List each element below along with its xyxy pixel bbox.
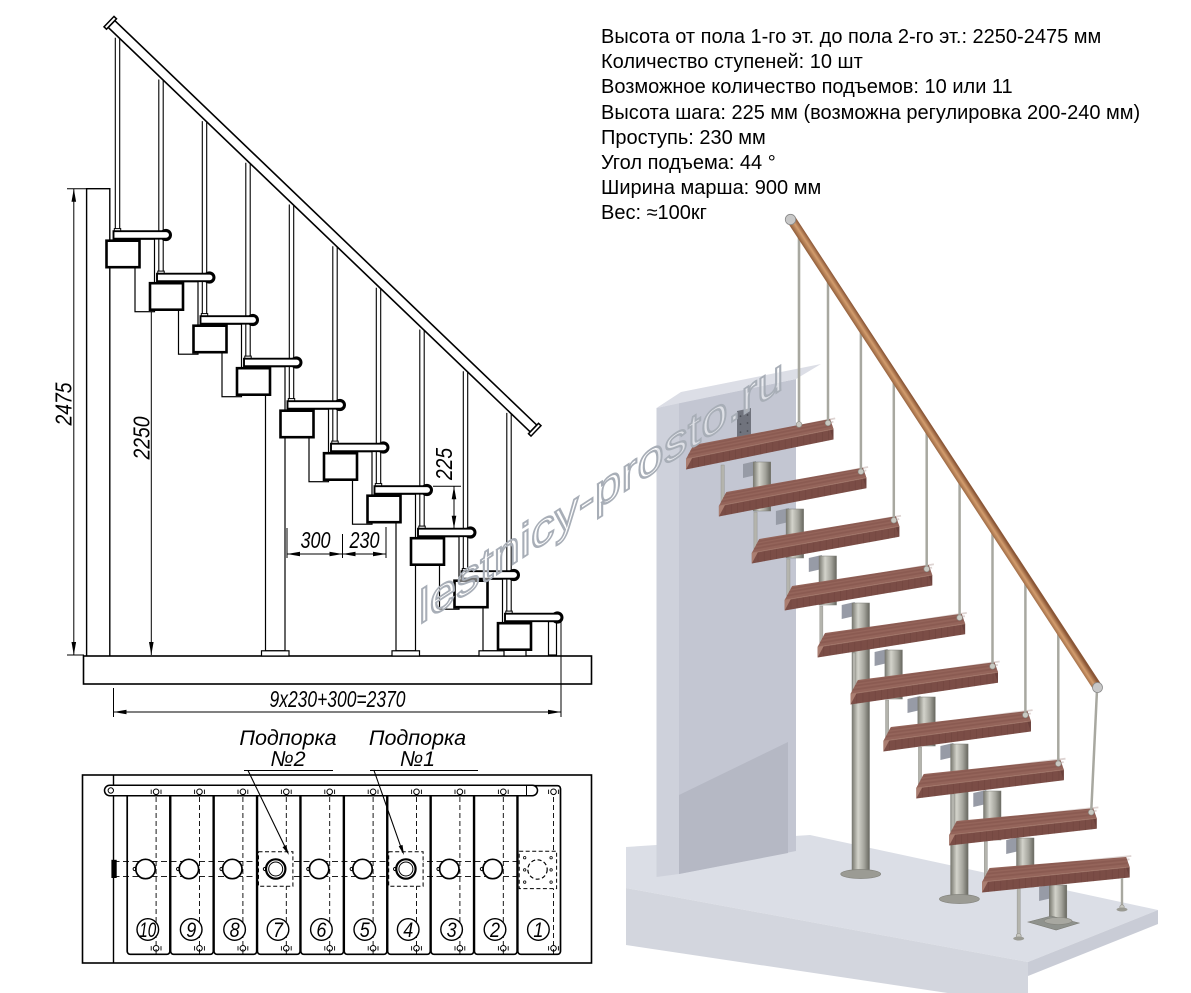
svg-text:230: 230 xyxy=(349,527,380,553)
svg-text:2250: 2250 xyxy=(129,416,155,460)
svg-text:8: 8 xyxy=(230,919,240,942)
svg-text:4: 4 xyxy=(403,919,413,942)
svg-text:9x230+300=2370: 9x230+300=2370 xyxy=(270,686,406,712)
svg-text:2: 2 xyxy=(489,919,500,942)
svg-text:7: 7 xyxy=(273,919,284,942)
svg-text:№1: №1 xyxy=(400,747,435,771)
svg-text:9: 9 xyxy=(186,919,196,942)
svg-text:6: 6 xyxy=(316,919,326,942)
svg-text:3: 3 xyxy=(447,919,457,942)
svg-text:2475: 2475 xyxy=(51,382,77,426)
svg-text:10: 10 xyxy=(139,919,156,942)
svg-text:№2: №2 xyxy=(270,747,305,771)
svg-text:300: 300 xyxy=(301,527,331,553)
svg-text:1: 1 xyxy=(533,919,543,942)
svg-text:225: 225 xyxy=(431,448,457,481)
svg-text:5: 5 xyxy=(360,919,370,942)
